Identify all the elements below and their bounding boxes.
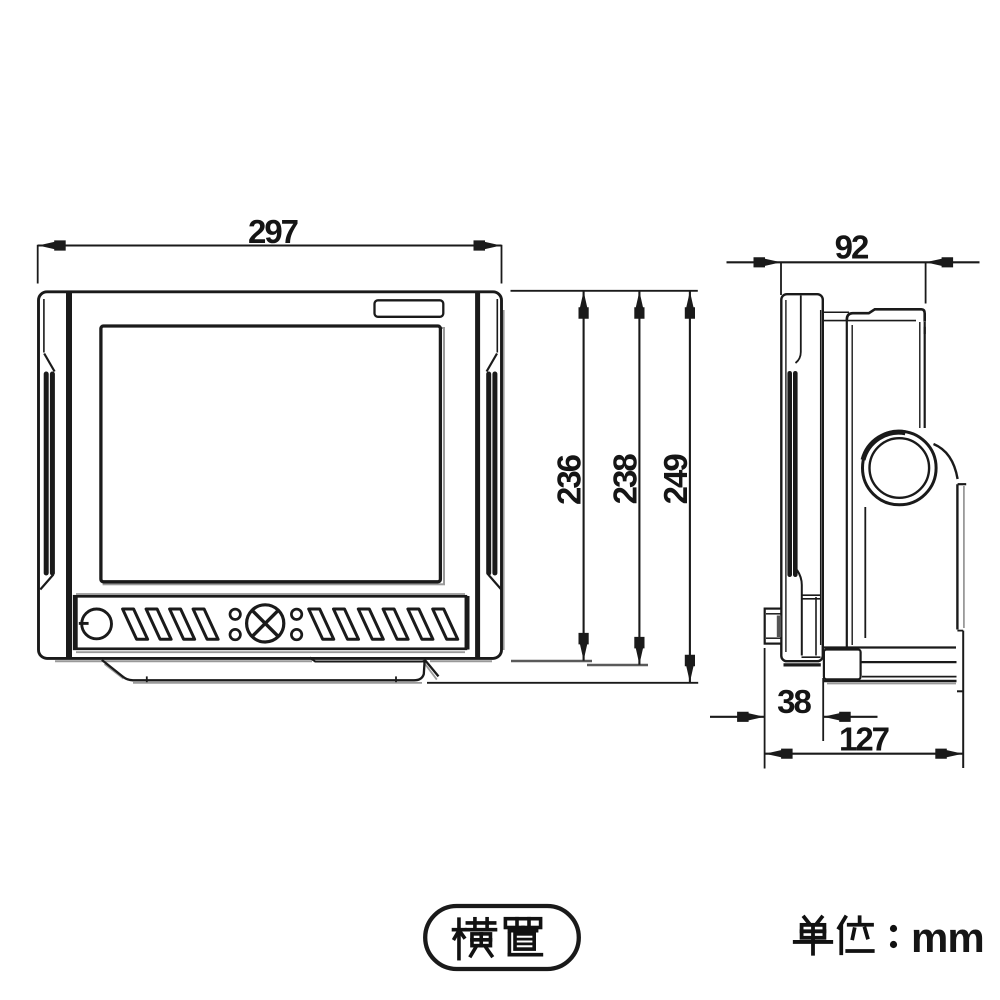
svg-text:249: 249	[657, 454, 694, 505]
svg-text:mm: mm	[911, 914, 984, 961]
svg-text:238: 238	[607, 454, 644, 505]
svg-text:38: 38	[777, 683, 811, 720]
svg-text:127: 127	[839, 721, 889, 758]
svg-text:92: 92	[835, 229, 869, 266]
svg-text:236: 236	[551, 454, 588, 505]
svg-text:297: 297	[248, 213, 298, 250]
